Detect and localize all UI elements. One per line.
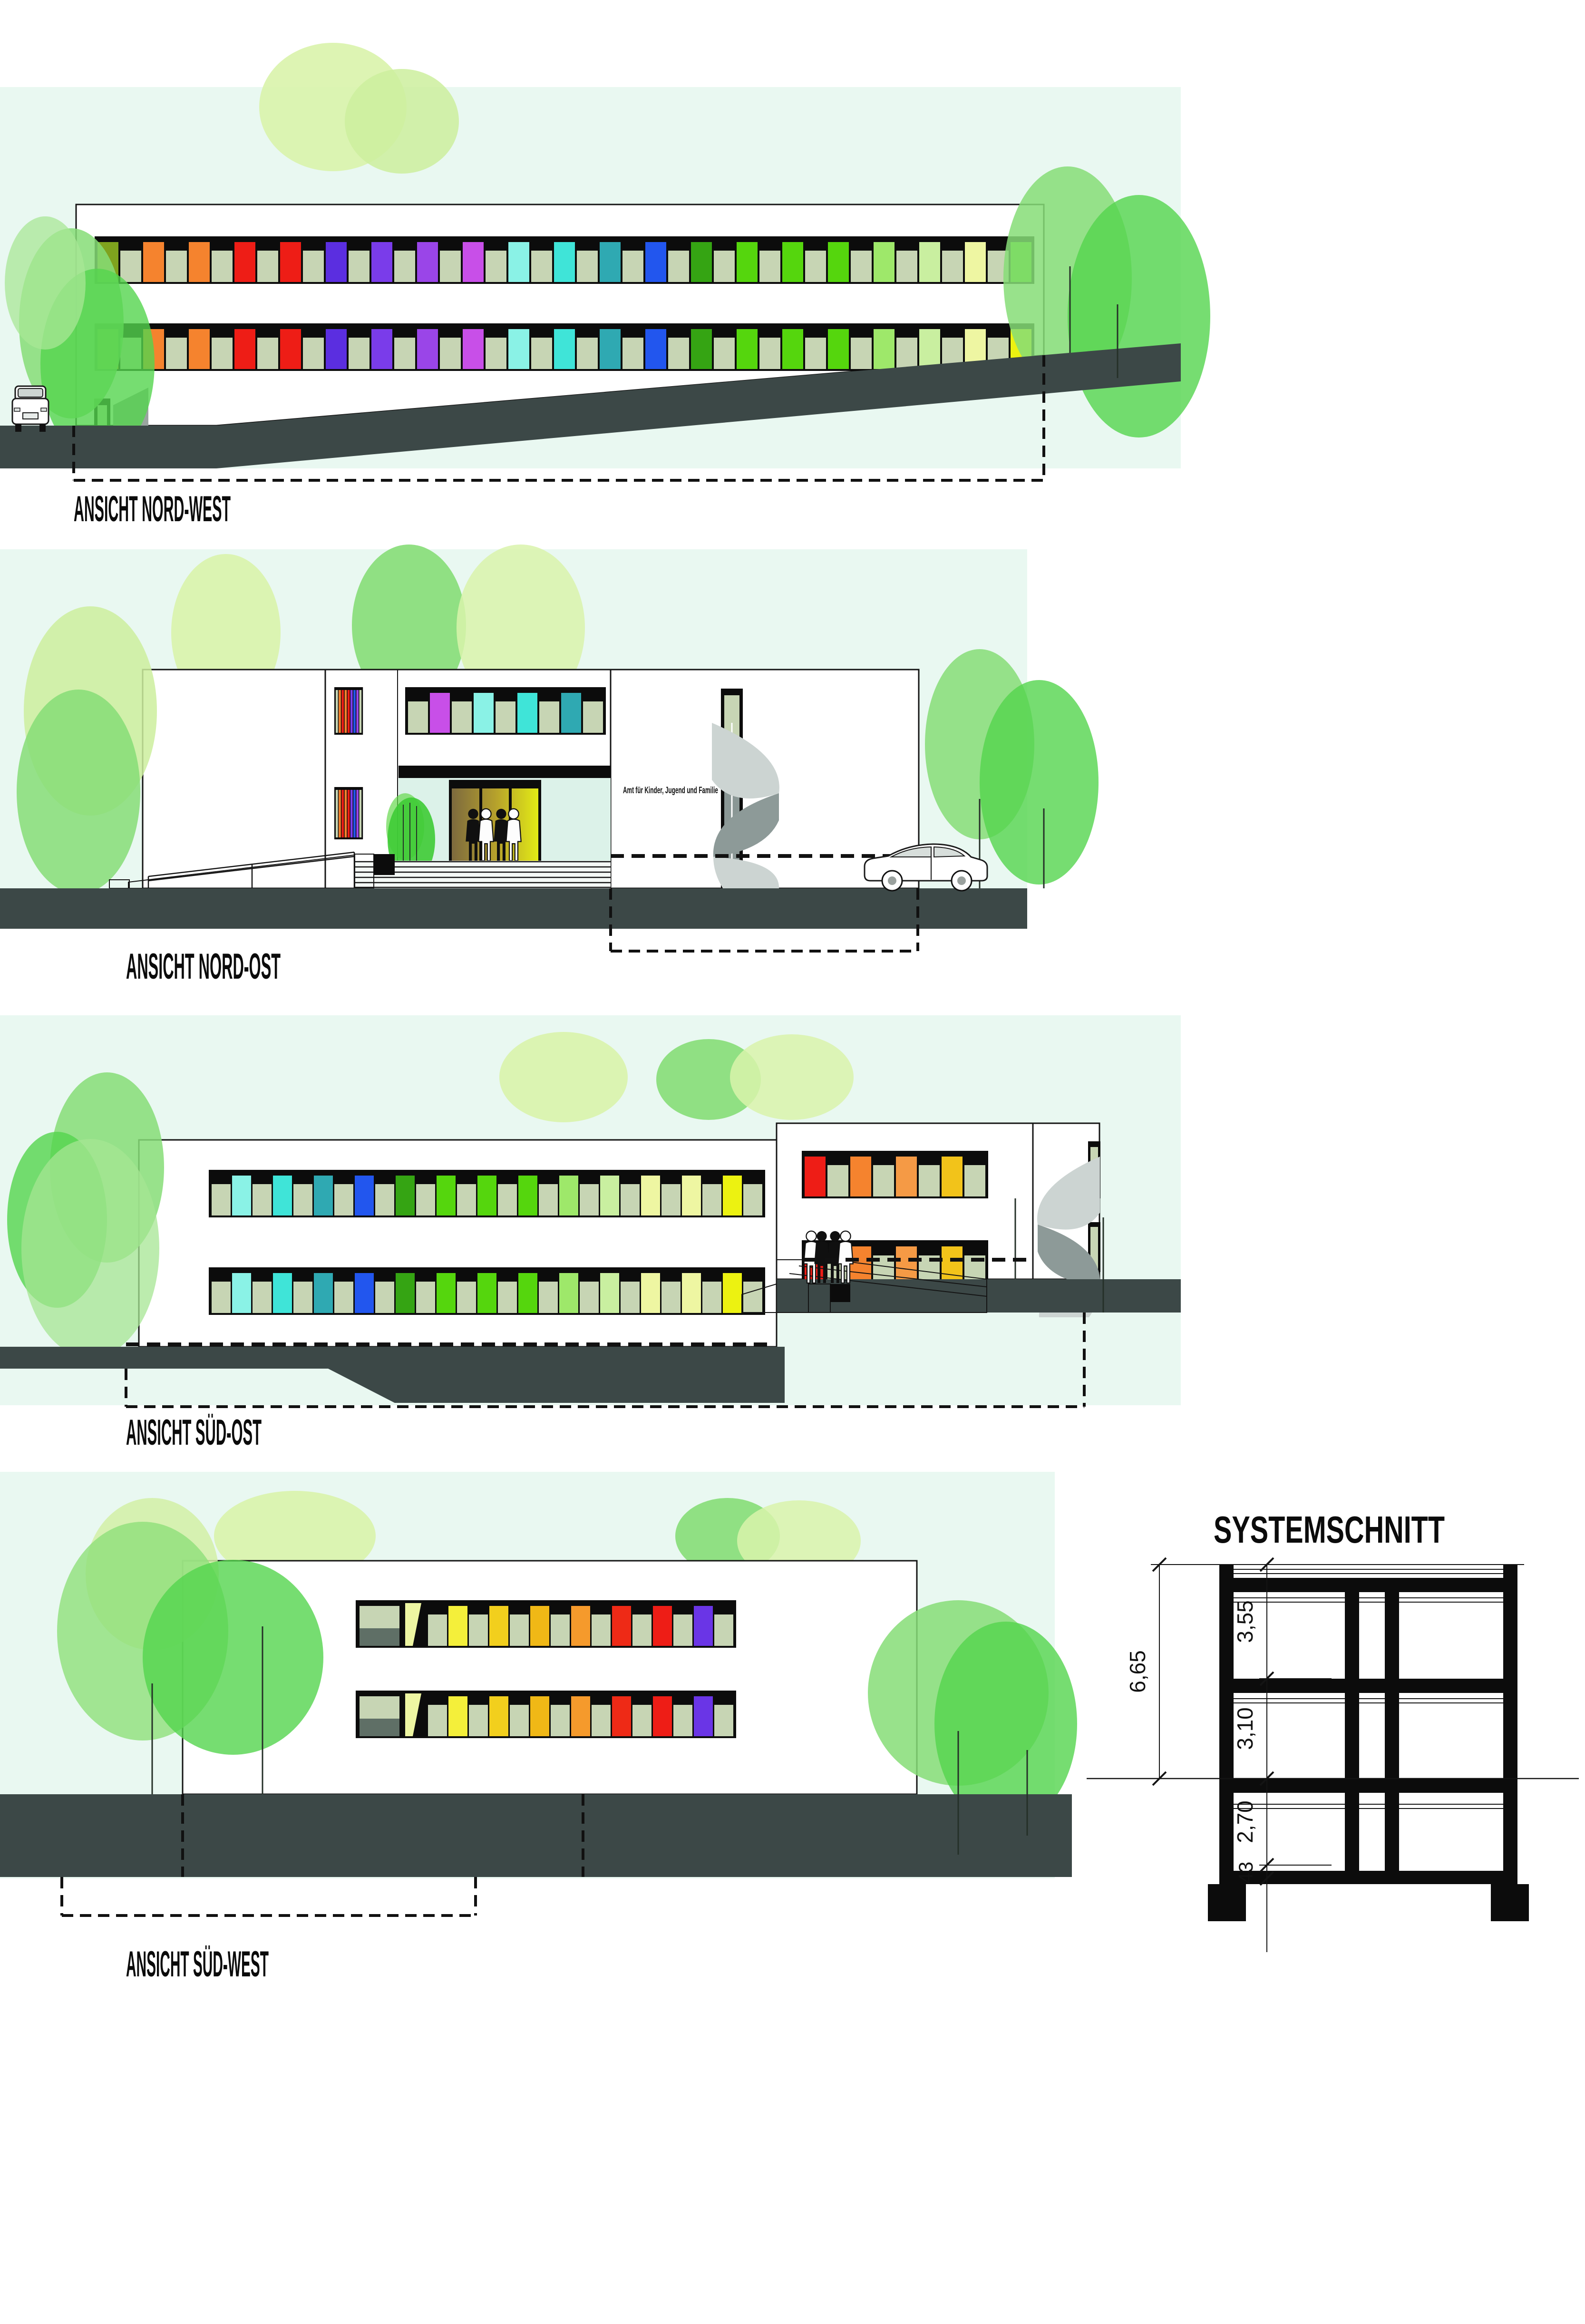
entry-door-glass — [452, 788, 538, 861]
section-footing-right — [1491, 1884, 1529, 1921]
entry-planter-dark — [830, 1284, 850, 1302]
section-wall-right — [1503, 1565, 1517, 1871]
section-title: SYSTEMSCHNITT — [1214, 1508, 1445, 1551]
dim-floor-ground: 3,10 — [1233, 1707, 1257, 1750]
view-title-suedwest: ANSICHT SÜD-WEST — [126, 1944, 269, 1984]
dim-floor-top: 3,55 — [1233, 1600, 1257, 1643]
tree-crown — [143, 1560, 323, 1755]
view-title-nordwest: ANSICHT NORD-WEST — [74, 489, 231, 529]
tree-crown — [499, 1032, 628, 1122]
system-section: SYSTEMSCHNITT 6,65 3,55 3,10 2 — [1087, 1508, 1579, 1952]
window-bay-upper — [356, 1600, 425, 1648]
window-row-entry-upper — [802, 1151, 988, 1198]
panel-nordwest: ANSICHT NORD-WEST — [0, 43, 1210, 529]
stair-strip-window-upper — [334, 687, 363, 735]
section-wall-corridor-left — [1345, 1578, 1359, 1871]
stair-strip-window-lower — [334, 787, 363, 839]
dim-slab: 43 — [1235, 1862, 1257, 1884]
tree-crown — [5, 216, 86, 350]
tree-crown — [730, 1034, 854, 1120]
floor-band — [399, 766, 611, 778]
section-bay-lines — [1234, 1598, 1503, 1809]
tree-crown — [17, 690, 140, 894]
view-title-suedost: ANSICHT SÜD-OST — [126, 1412, 262, 1453]
dim-total: 6,65 — [1125, 1650, 1150, 1693]
tree-crown — [345, 69, 459, 174]
window-row-upper — [405, 687, 606, 735]
section-wall-corridor-right — [1385, 1578, 1399, 1871]
entry-planter-dark — [374, 854, 395, 875]
section-footing-left — [1208, 1884, 1246, 1921]
window-row-lower — [95, 323, 1034, 371]
panel-nordost: Amt für Kinder, Jugend und Familie — [0, 545, 1099, 987]
tree-crown — [21, 1139, 159, 1358]
window-bay-lower — [356, 1691, 425, 1738]
window-row-lower — [209, 1267, 765, 1315]
drawing-sheet: ANSICHT NORD-WEST Amt für Kinder, Jugend… — [0, 0, 1585, 2324]
ground-band — [0, 888, 1027, 929]
view-title-nordost: ANSICHT NORD-OST — [126, 946, 281, 987]
panel-suedost: ANSICHT SÜD-OST — [0, 1015, 1181, 1453]
building-sign-text: Amt für Kinder, Jugend und Familie — [623, 786, 718, 796]
section-wall-left — [1219, 1565, 1234, 1871]
window-row-upper — [209, 1170, 765, 1217]
panel-suedwest: ANSICHT SÜD-WEST — [0, 1472, 1077, 1984]
window-row-upper — [425, 1600, 736, 1648]
ground-band — [0, 1794, 1072, 1877]
section-roof-slab — [1219, 1578, 1517, 1592]
window-row-lower — [425, 1691, 736, 1738]
tree-crown — [1068, 195, 1210, 438]
tree-crown — [980, 680, 1099, 885]
window-row-upper — [95, 236, 1034, 284]
architectural-drawing: ANSICHT NORD-WEST Amt für Kinder, Jugend… — [0, 0, 1585, 2324]
dim-floor-basement: 2,70 — [1233, 1800, 1257, 1843]
